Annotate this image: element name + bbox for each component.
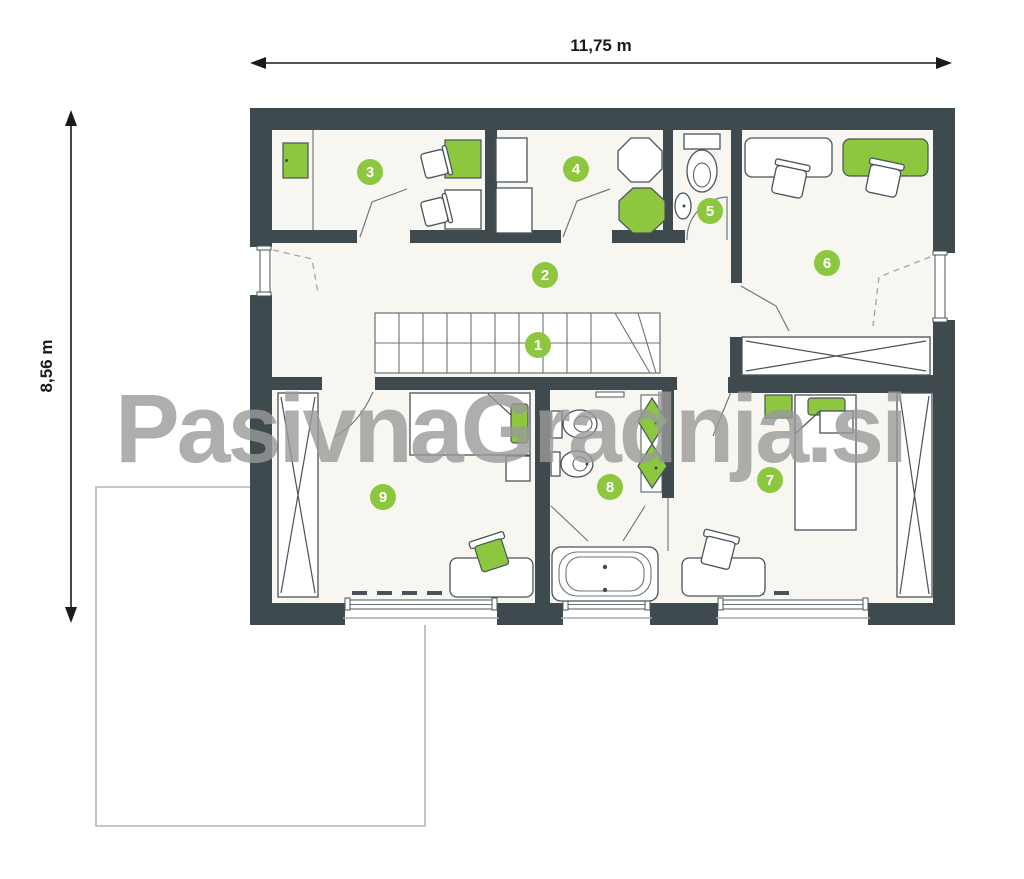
watermark-text: PasivnaGradnja.si [115,374,905,483]
room-badge-2: 2 [532,262,558,288]
room-badge-3: 3 [357,159,383,185]
room-badge-1: 1 [525,332,551,358]
room-badge-6: 6 [814,250,840,276]
pouf-octagon-icon [619,188,665,233]
dimension-height-label: 8,56 m [37,340,56,393]
room-badge-9: 9 [370,484,396,510]
table-octagon-icon [618,138,662,182]
floor-plan-drawing: 11,75 m 8,56 m [0,0,1024,879]
room-badge-5: 5 [697,198,723,224]
wall-room3-room4 [485,130,497,243]
floor-plan-canvas: 11,75 m 8,56 m [0,0,1024,879]
svg-text:4: 4 [572,161,581,178]
svg-text:2: 2 [541,267,549,284]
room-badge-4: 4 [563,156,589,182]
cabinet-icon [496,138,527,182]
svg-text:9: 9 [379,489,387,506]
dimension-width-label: 11,75 m [570,36,631,55]
svg-text:6: 6 [823,255,831,272]
toilet-tank-icon [684,134,720,149]
cabinet-icon [496,188,532,233]
wall-room4-wc [663,130,673,243]
stairs [375,313,660,373]
wall-hall-room6 [731,130,742,283]
svg-text:5: 5 [706,203,714,220]
svg-text:1: 1 [534,337,542,354]
svg-text:3: 3 [366,164,374,181]
bathtub-icon [552,547,658,601]
